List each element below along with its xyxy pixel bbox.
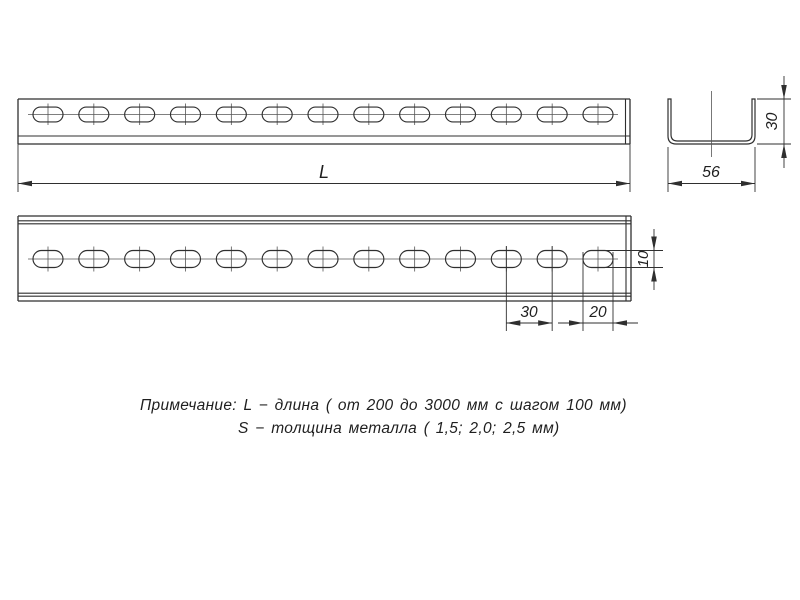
drawing-sheet: L 56 30 10 30 20 Примечание: L − длина (… xyxy=(0,0,800,600)
dim-hole-height-label: 10 xyxy=(635,250,652,267)
side-view xyxy=(18,99,630,144)
note-line-1: Примечание: L − длина ( от 200 до 3000 м… xyxy=(140,397,627,415)
cross-section-view xyxy=(668,91,755,157)
note-line-2: S − толщина металла ( 1,5; 2,0; 2,5 мм) xyxy=(238,420,559,438)
dim-section-height-label: 30 xyxy=(764,113,781,131)
plan-view xyxy=(18,216,631,301)
dim-hole-pitch-label: 30 xyxy=(520,304,538,321)
dim-slot-length-label: 20 xyxy=(588,304,607,321)
technical-drawing: L 56 30 10 30 20 xyxy=(0,0,800,600)
dim-section-width-label: 56 xyxy=(702,164,720,181)
dim-length-label: L xyxy=(319,162,329,182)
